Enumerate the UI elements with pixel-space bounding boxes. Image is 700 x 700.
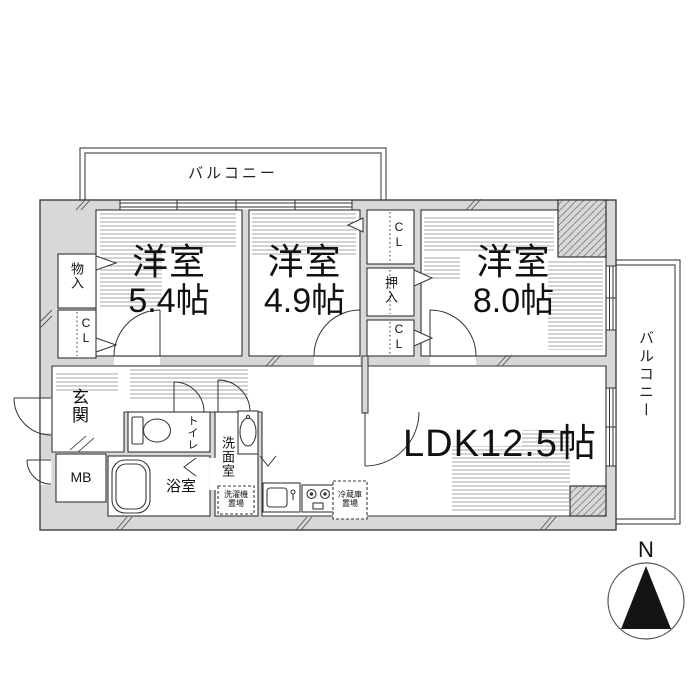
bedroom1-name: 洋室 (96, 242, 242, 282)
bath-label: 浴室 (152, 479, 210, 496)
compass-north-label: N (626, 538, 666, 563)
closet-mid-label: CL (393, 322, 405, 352)
compass (608, 563, 684, 639)
bedroom2-size: 4.9帖 (249, 282, 360, 320)
oshiire-label: 押入 (384, 276, 397, 304)
toilet-label: トイレ (186, 415, 197, 451)
washbasin-icon (238, 411, 258, 454)
washer-space-label: 洗濯機 置場 (218, 490, 254, 508)
bedroom3-label: 洋室 8.0帖 (421, 242, 606, 320)
closet-left-label: CL (80, 316, 92, 346)
fridge-line2: 置場 (333, 499, 367, 508)
bedroom1-size: 5.4帖 (96, 282, 242, 320)
fridge-space-label: 冷蔵庫 置場 (333, 490, 367, 508)
bedroom3-name: 洋室 (421, 242, 606, 282)
washer-line1: 洗濯機 (218, 490, 254, 499)
floorplan-page: バルコニー バルコニー 洋室 5.4帖 洋室 4.9帖 洋室 8.0帖 LDK1… (0, 0, 700, 700)
bedroom2-label: 洋室 4.9帖 (249, 242, 360, 320)
wall-stub (362, 356, 368, 413)
mb-label: MB (62, 470, 100, 486)
bedroom2-name: 洋室 (249, 242, 360, 282)
washroom-label: 洗面室 (221, 436, 234, 478)
balcony-top-label: バルコニー (95, 166, 371, 183)
closet-top-label: CL (393, 220, 405, 250)
stove-icon (302, 485, 335, 512)
washer-line2: 置場 (218, 499, 254, 508)
ldk-label: LDK12.5帖 (375, 423, 625, 466)
floorplan-drawing (0, 0, 700, 700)
toilet-icon (132, 417, 171, 444)
bedroom1-label: 洋室 5.4帖 (96, 242, 242, 320)
monoire-label: 物入 (70, 262, 83, 290)
bathtub-icon (112, 460, 150, 513)
genkan-label: 玄関 (70, 388, 87, 424)
balcony-right-label: バルコニー (638, 330, 653, 420)
kitchen-sink-icon (263, 483, 300, 512)
closet-mid-area (367, 320, 414, 356)
bedroom3-size: 8.0帖 (421, 282, 606, 320)
fridge-line1: 冷蔵庫 (333, 490, 367, 499)
